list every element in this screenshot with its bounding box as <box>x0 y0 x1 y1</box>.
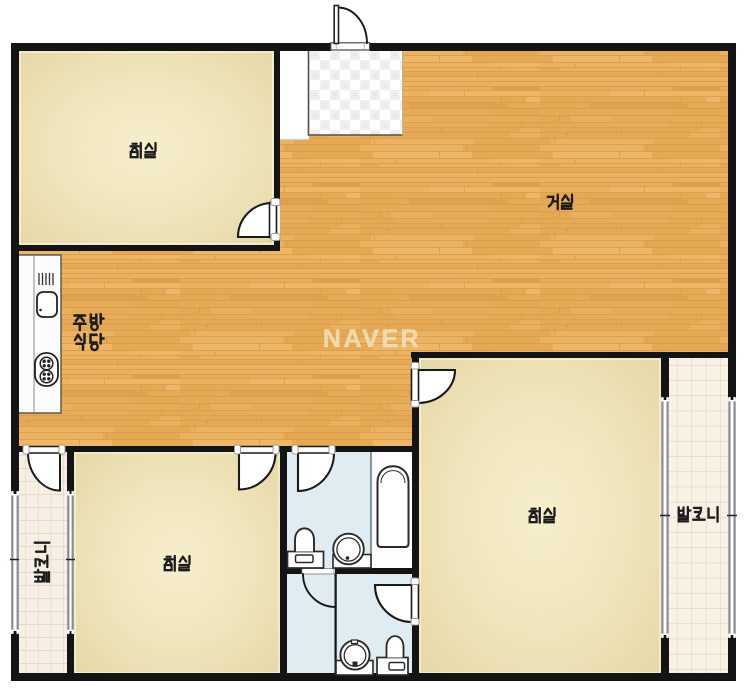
svg-text:NAVER: NAVER <box>323 325 421 353</box>
